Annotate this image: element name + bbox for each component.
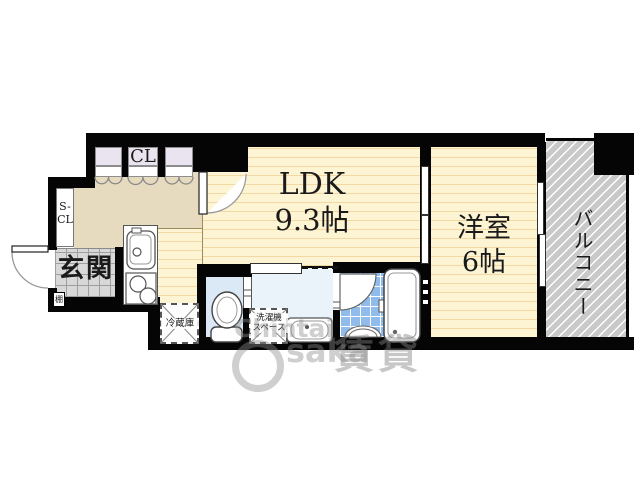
- shelf-label: 棚: [53, 292, 65, 307]
- sliding-door-ldk-bedroom-panel-1: [421, 166, 429, 215]
- wall-vent-dash-1: [423, 280, 428, 284]
- wall-closet-divider-2: [158, 147, 165, 177]
- entrance-door: [12, 246, 48, 288]
- closet-compartment-1: [95, 147, 122, 166]
- sliding-door-ldk-bedroom-panel-2: [421, 215, 429, 264]
- kitchen-counter: [123, 225, 158, 305]
- bedroom-size-label: 6帖: [434, 249, 534, 277]
- wall-vent-dash-2: [423, 290, 428, 294]
- floorplan: LDK 9.3帖 洋室 6帖 バルコニー 玄関 CL S- CL 棚 冷蔵庫 洗…: [0, 0, 640, 480]
- wall-corner-pillar: [594, 133, 634, 175]
- ldk-size-label: 9.3帖: [242, 205, 382, 235]
- wall-kitchen-left: [115, 247, 123, 299]
- kitchen-aisle-floor: [157, 228, 202, 305]
- bedroom-label: 洋室: [434, 215, 534, 243]
- closet-shelf-2: [128, 166, 158, 177]
- wall-vent-dash-3: [423, 300, 428, 304]
- watermark-o-circle: [232, 340, 284, 392]
- shoe-closet-label: S- CL: [56, 200, 74, 226]
- washroom-sliding-door-track: [302, 266, 338, 269]
- wall-bath-top: [333, 262, 430, 273]
- wall-toilet-top: [197, 264, 252, 277]
- hallway-floor-left: [74, 188, 95, 252]
- wall-closet-block: [193, 147, 248, 172]
- bathroom-door-gap: [333, 273, 340, 310]
- washroom-sliding-door-panel: [250, 263, 302, 274]
- wall-left-upper: [86, 133, 95, 179]
- watermark-kanji: 賃貸: [334, 322, 422, 380]
- refrigerator-label: 冷蔵庫: [161, 318, 199, 329]
- balcony-window-sash-1: [537, 182, 544, 235]
- closet-compartment-3: [165, 147, 193, 166]
- closet-label: CL: [128, 148, 158, 167]
- balcony-window-sash-2: [539, 234, 546, 287]
- entrance-label: 玄関: [57, 256, 115, 283]
- toilet-door: [243, 277, 252, 308]
- wall-top: [88, 133, 545, 147]
- ldk-label: LDK: [242, 169, 382, 201]
- balcony-label: バルコニー: [564, 190, 592, 335]
- closet-shelf-3: [165, 166, 193, 177]
- closet-shelf-1: [95, 166, 122, 177]
